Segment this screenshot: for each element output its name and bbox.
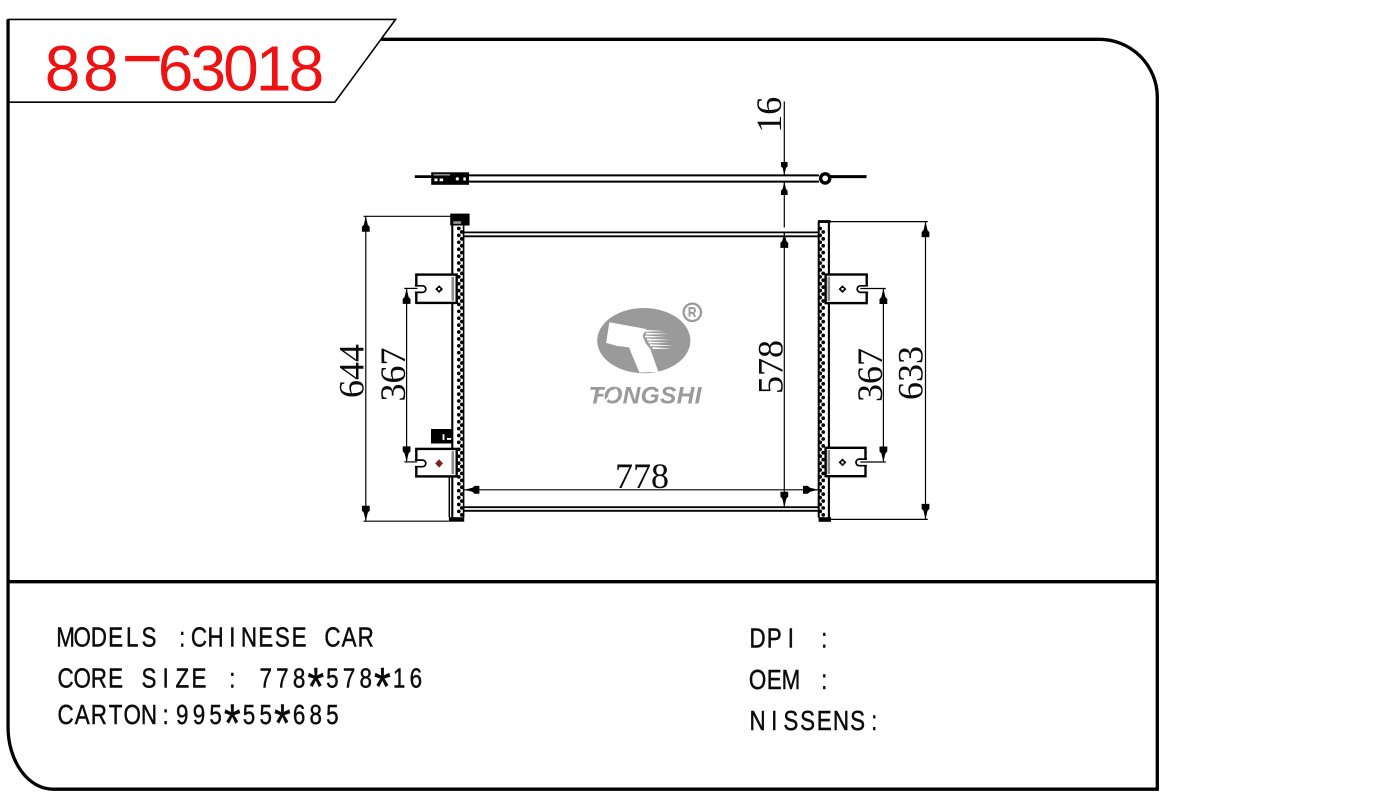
svg-text:367: 367	[850, 348, 890, 402]
svg-text:578: 578	[751, 340, 791, 394]
svg-text:TONGSHI: TONGSHI	[589, 383, 703, 410]
svg-text:**: **	[224, 694, 291, 754]
svg-text:88: 88	[45, 33, 122, 105]
svg-text:367: 367	[373, 348, 413, 402]
svg-text:CARTON:99555685: CARTON:99555685	[57, 700, 338, 731]
svg-text:CORESIZE:77857816: CORESIZE:77857816	[57, 663, 422, 694]
svg-text:644: 644	[332, 344, 372, 398]
svg-text:778: 778	[615, 456, 669, 496]
svg-text:MODELS:CHINESECAR: MODELS:CHINESECAR	[56, 622, 374, 653]
svg-text:16: 16	[749, 97, 789, 133]
svg-text:633: 633	[891, 346, 931, 400]
svg-text:63018: 63018	[158, 33, 322, 105]
svg-text:DPI:: DPI:	[749, 623, 827, 654]
svg-text:NISSENS:: NISSENS:	[749, 706, 877, 737]
svg-text:OEM:: OEM:	[749, 665, 828, 696]
